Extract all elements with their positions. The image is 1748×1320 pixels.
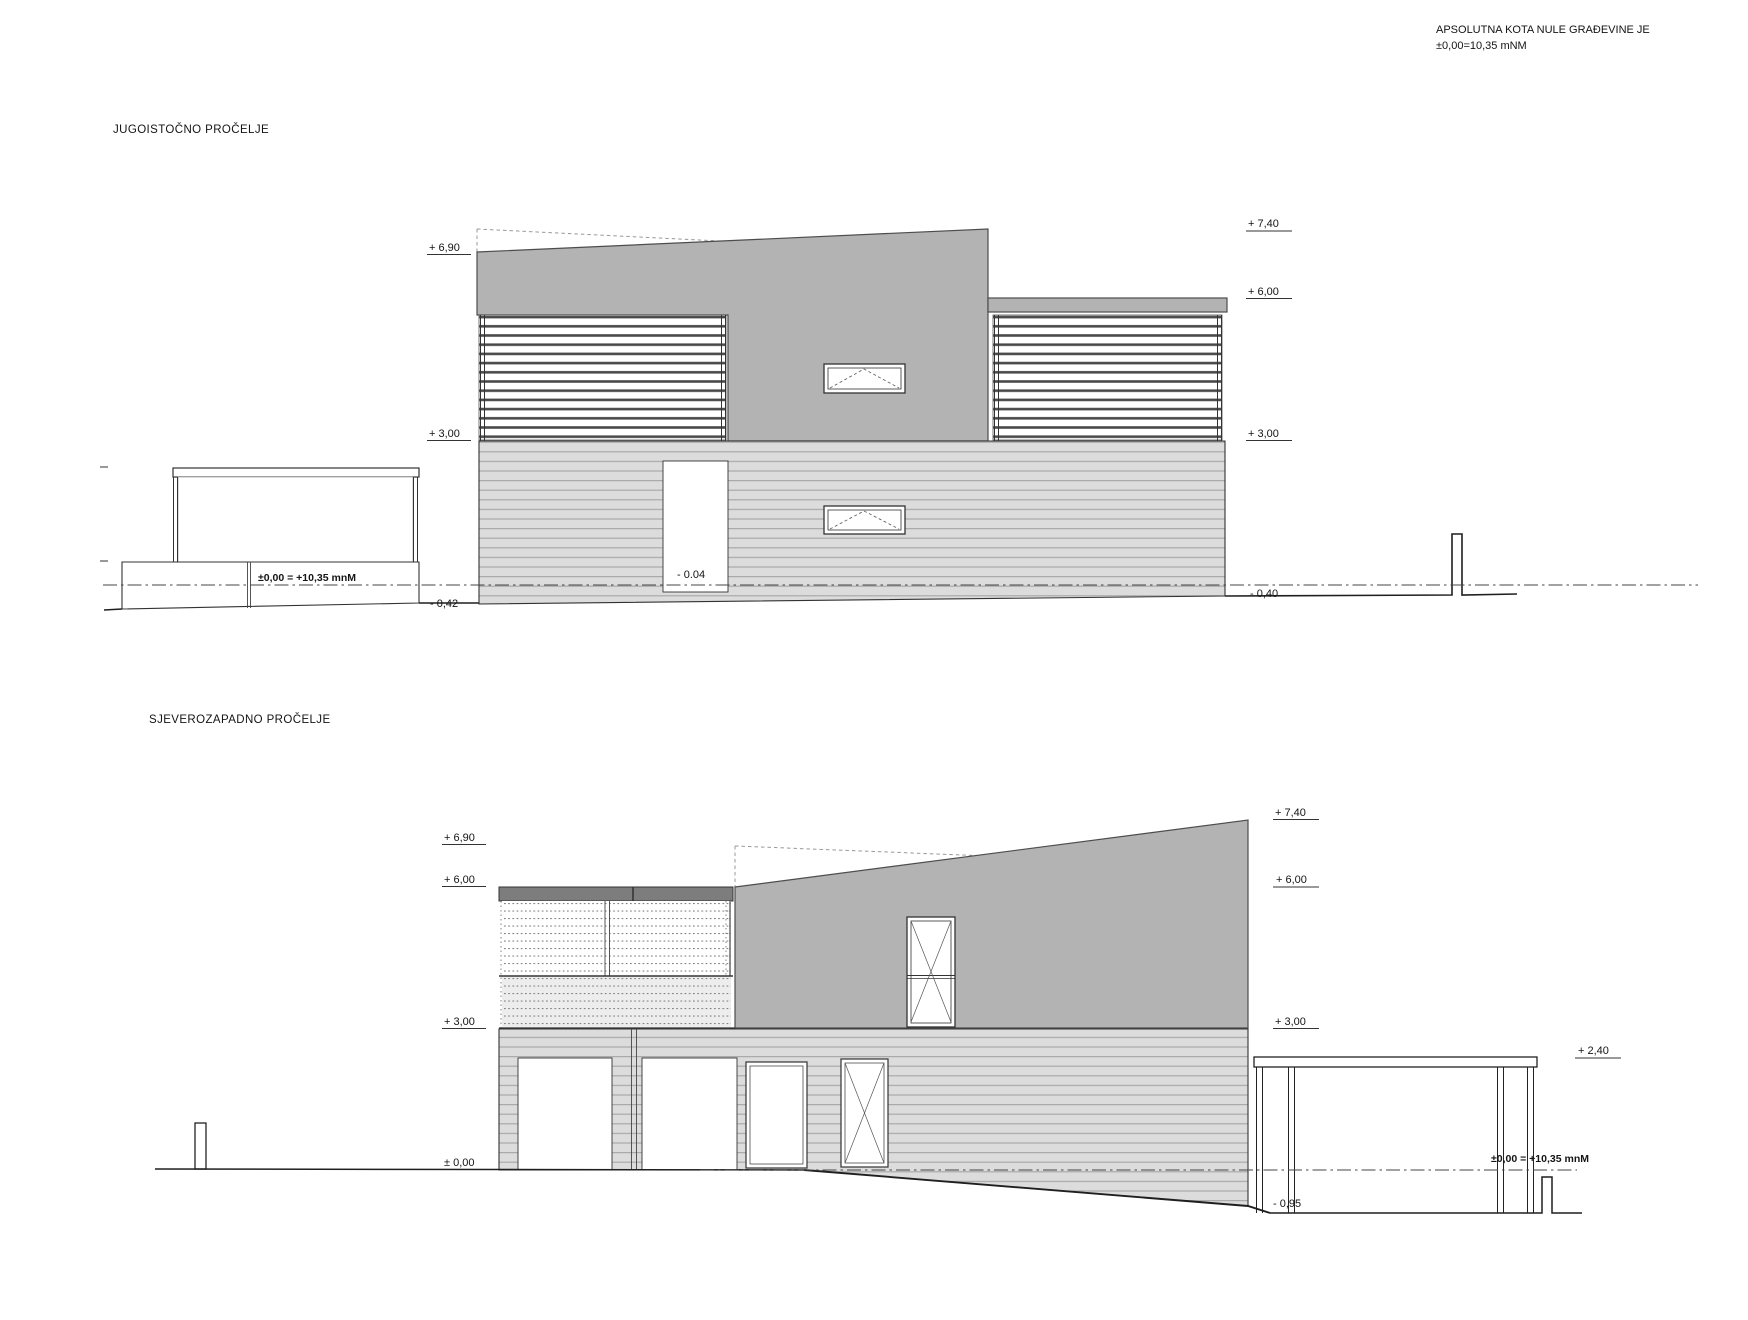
se-terrace-interior — [178, 477, 413, 562]
note-line-2: ±0,00=10,35 mNM — [1436, 40, 1527, 52]
se-terrace-plinth — [122, 562, 419, 609]
nw-carport-roof — [1254, 1057, 1537, 1067]
nw-glazed-door — [746, 1062, 807, 1168]
nw-dim-240: + 2,40 — [1578, 1045, 1609, 1057]
se-dim-minus-042: - 0,42 — [430, 598, 458, 610]
se-dim-300-right: + 3,00 — [1248, 428, 1279, 440]
nw-dim-300-right: + 3,00 — [1275, 1016, 1306, 1028]
nw-datum-label: ±0,00 = +10,35 mnM — [1491, 1153, 1589, 1165]
nw-flat-roof-band — [499, 887, 733, 901]
se-terrace-roof-band — [173, 468, 419, 477]
se-dim-300-left: + 3,00 — [429, 428, 460, 440]
note-line-1: APSOLUTNA KOTA NULE GRAĐEVINE JE — [1436, 24, 1650, 36]
se-dim-740: + 7,40 — [1248, 218, 1279, 230]
elevation-drawing-sheet: APSOLUTNA KOTA NULE GRAĐEVINE JE ±0,00=1… — [0, 0, 1748, 1320]
nw-terrace-balustrade — [499, 976, 735, 1028]
nw-dim-690: + 6,90 — [444, 832, 475, 844]
nw-dim-600-right: + 6,00 — [1276, 874, 1307, 886]
se-upper-window — [824, 364, 905, 393]
se-datum-label: ±0,00 = +10,35 mnM — [258, 572, 356, 584]
nw-garage-opening-2 — [642, 1058, 737, 1170]
se-left-louvers — [479, 315, 726, 441]
drawing-canvas: APSOLUTNA KOTA NULE GRAĐEVINE JE ±0,00=1… — [0, 0, 1748, 1320]
se-dim-600: + 6,00 — [1248, 286, 1279, 298]
nw-marker-post — [195, 1123, 206, 1169]
nw-title: SJEVEROZAPADNO PROČELJE — [149, 713, 331, 726]
nw-dim-000: ± 0,00 — [444, 1157, 475, 1169]
nw-dim-300-left: + 3,00 — [444, 1016, 475, 1028]
se-dim-minus-004: - 0.04 — [677, 569, 705, 581]
se-dim-690: + 6,90 — [429, 242, 460, 254]
nw-tall-window — [907, 917, 955, 1027]
nw-garage-opening-1 — [518, 1058, 612, 1170]
se-title: JUGOISTOČNO PROČELJE — [113, 123, 269, 136]
se-lower-window — [824, 506, 905, 534]
se-dim-minus-040: - 0,40 — [1250, 588, 1278, 600]
nw-dim-minus-095: - 0,95 — [1273, 1198, 1301, 1210]
nw-dim-600-left: + 6,00 — [444, 874, 475, 886]
nw-tilt-turn-door — [841, 1059, 888, 1167]
se-right-louvers — [993, 315, 1222, 441]
nw-dim-740: + 7,40 — [1275, 807, 1306, 819]
se-right-roof-band — [988, 298, 1227, 312]
